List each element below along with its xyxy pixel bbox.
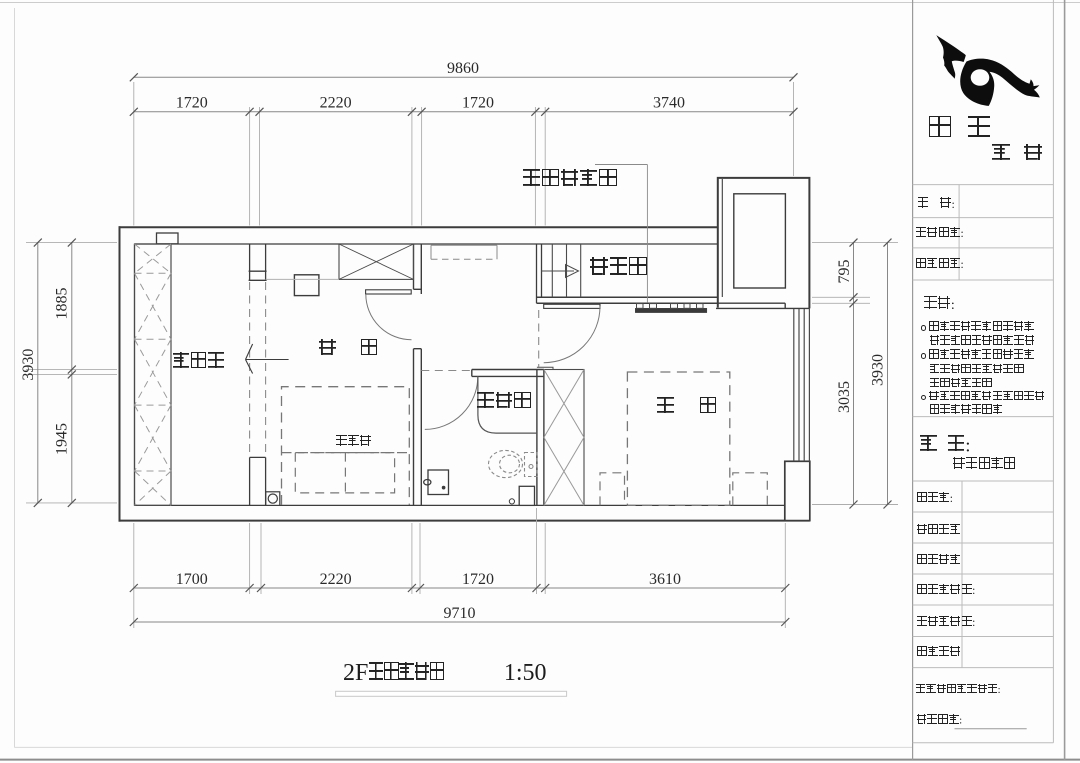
svg-text:3740: 3740 — [653, 95, 685, 112]
svg-text:1720: 1720 — [462, 95, 494, 112]
svg-text:9860: 9860 — [447, 60, 479, 77]
svg-text:2220: 2220 — [320, 571, 352, 588]
svg-text:1720: 1720 — [176, 95, 208, 112]
svg-text:3930: 3930 — [870, 354, 887, 386]
svg-text:2220: 2220 — [320, 95, 352, 112]
svg-text:1720: 1720 — [462, 571, 494, 588]
svg-text:9710: 9710 — [444, 605, 476, 622]
svg-text:795: 795 — [836, 260, 853, 284]
svg-text:1945: 1945 — [54, 423, 71, 455]
svg-text:3035: 3035 — [836, 381, 853, 413]
svg-text:3930: 3930 — [20, 349, 37, 381]
svg-text:1700: 1700 — [176, 571, 208, 588]
svg-text:3610: 3610 — [649, 571, 681, 588]
svg-text:1885: 1885 — [54, 288, 71, 320]
